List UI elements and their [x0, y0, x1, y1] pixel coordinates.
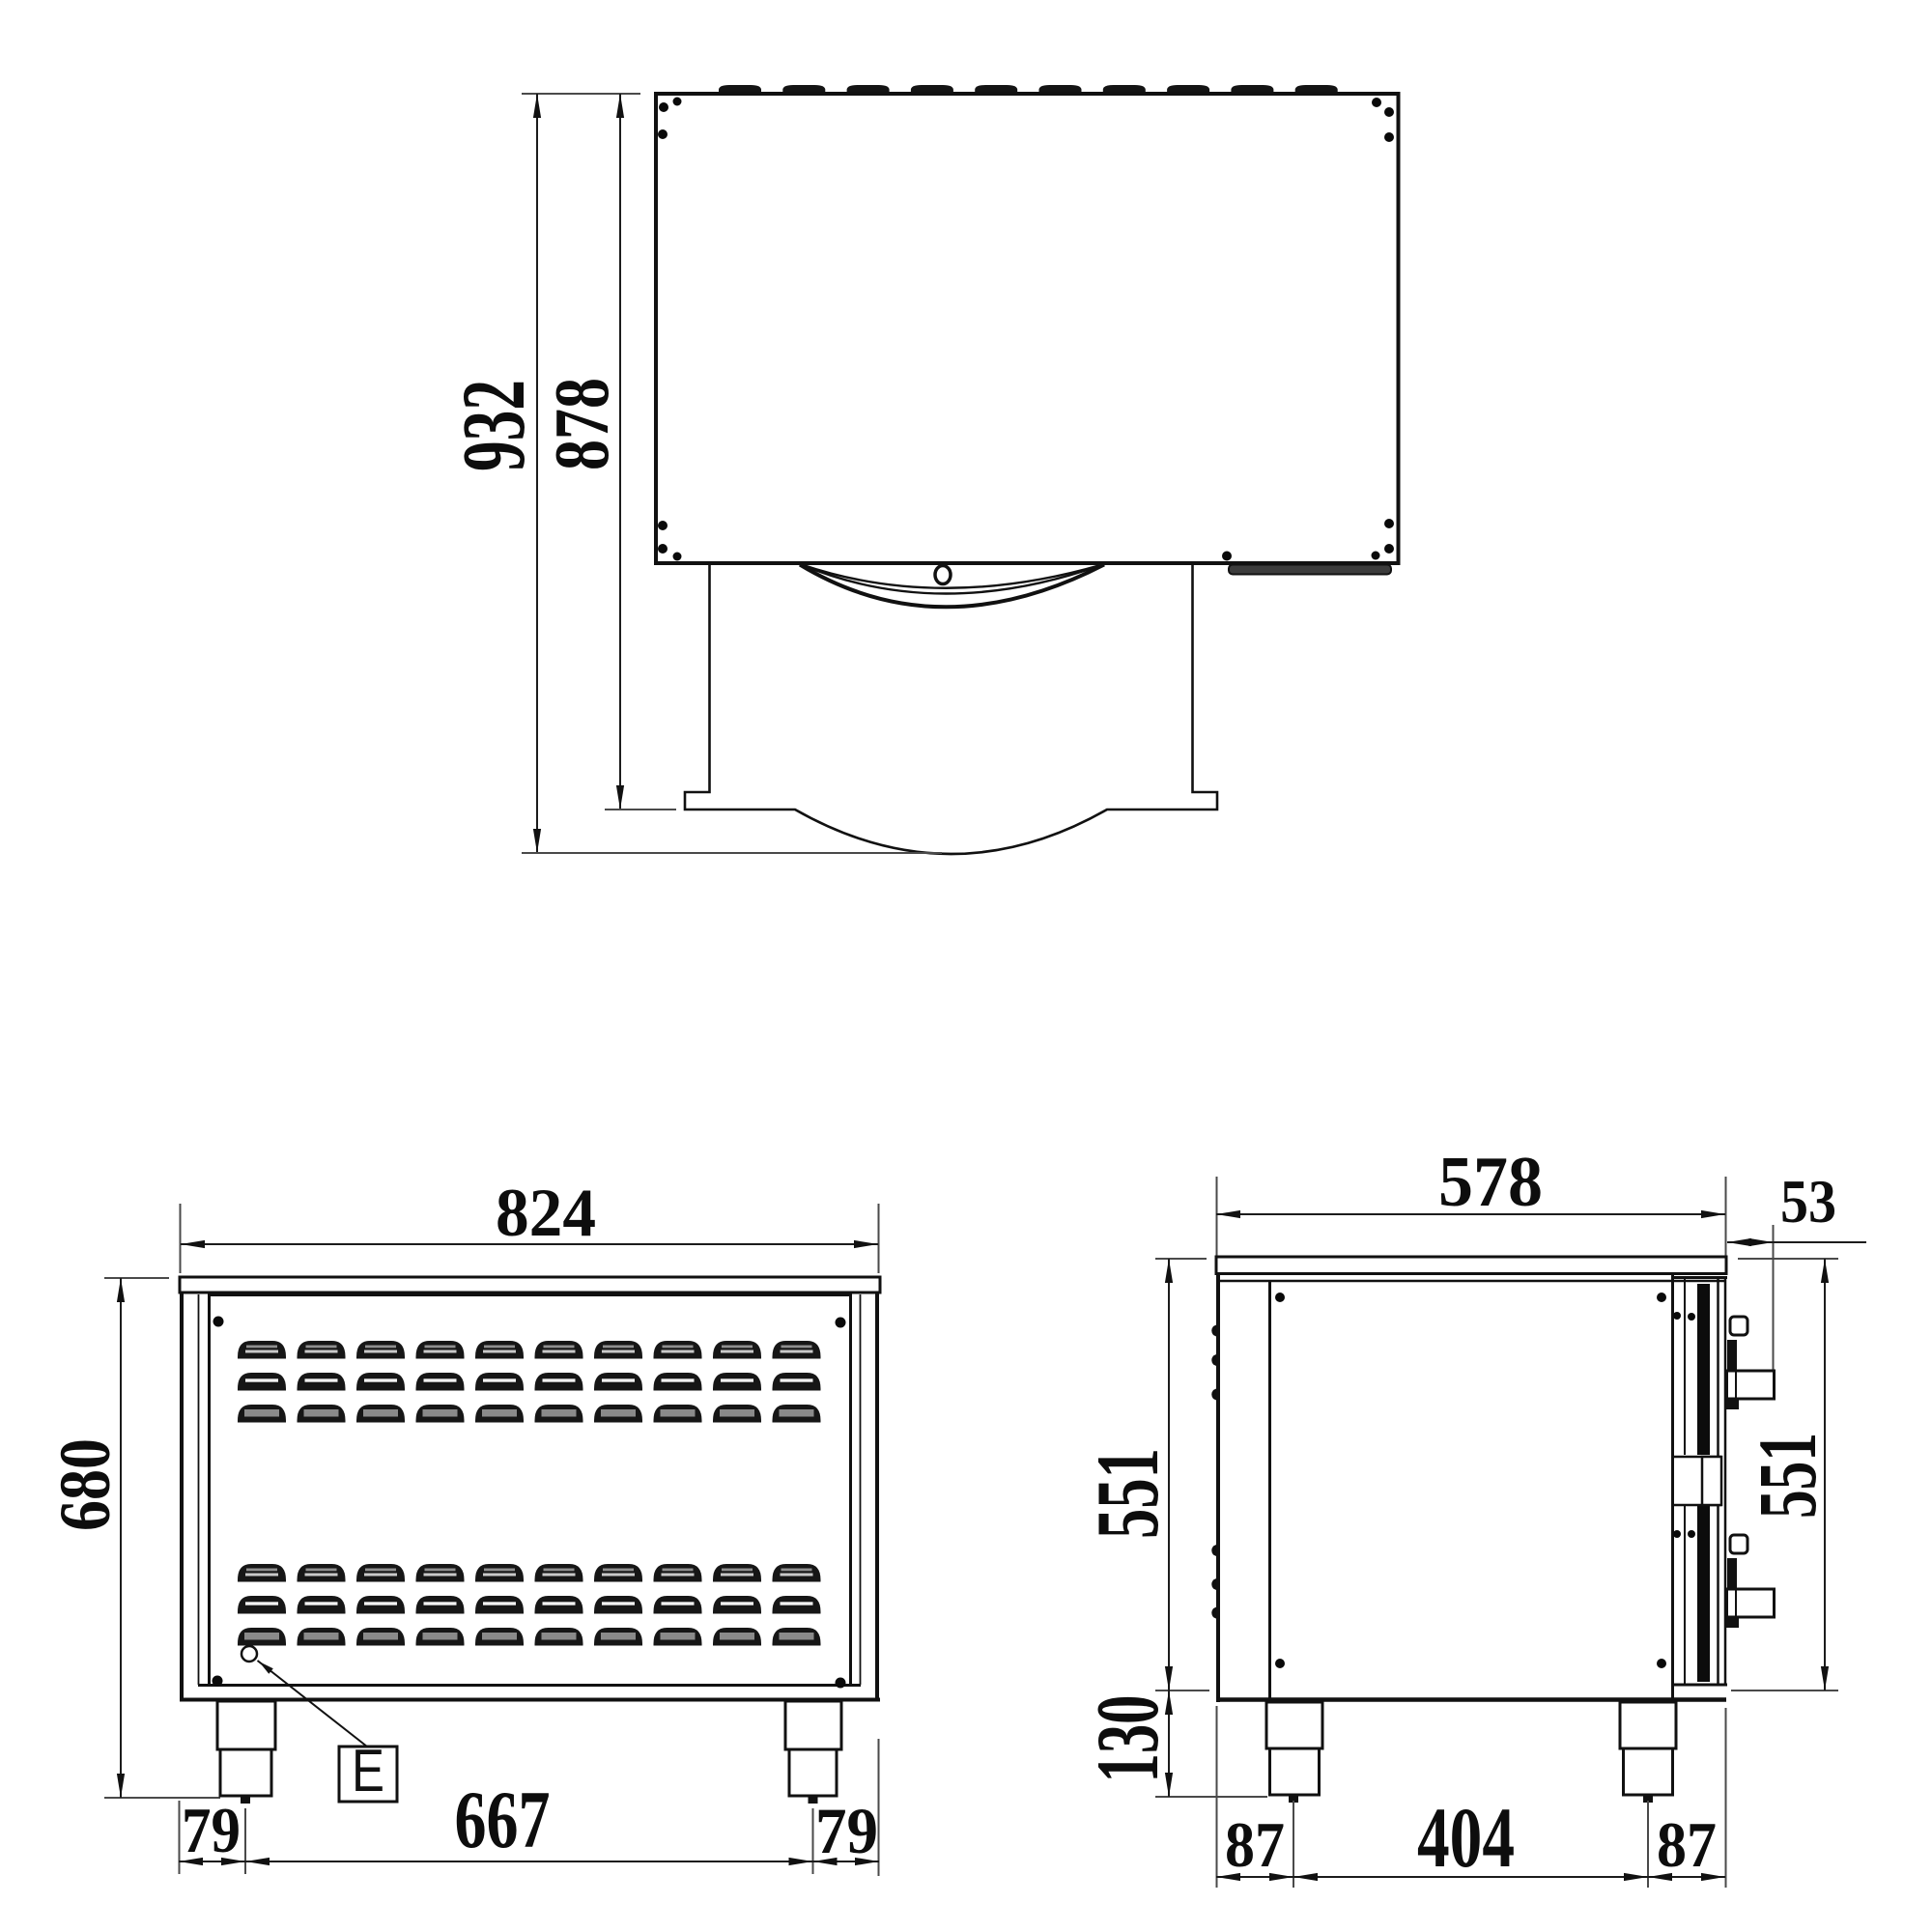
svg-text:87: 87	[1225, 1810, 1285, 1881]
svg-text:878: 878	[540, 378, 625, 470]
svg-text:87: 87	[1657, 1810, 1717, 1881]
svg-text:130: 130	[1078, 1695, 1177, 1783]
svg-text:404: 404	[1417, 1791, 1515, 1886]
svg-text:E: E	[352, 1738, 384, 1804]
svg-text:79: 79	[815, 1794, 878, 1867]
svg-text:551: 551	[1078, 1448, 1177, 1539]
svg-text:578: 578	[1438, 1143, 1543, 1222]
svg-text:824: 824	[496, 1176, 596, 1251]
svg-text:680: 680	[45, 1438, 126, 1531]
svg-text:551: 551	[1741, 1433, 1833, 1519]
svg-text:53: 53	[1780, 1168, 1836, 1236]
svg-text:667: 667	[455, 1776, 551, 1865]
svg-text:79: 79	[182, 1796, 241, 1866]
svg-text:932: 932	[444, 380, 544, 471]
